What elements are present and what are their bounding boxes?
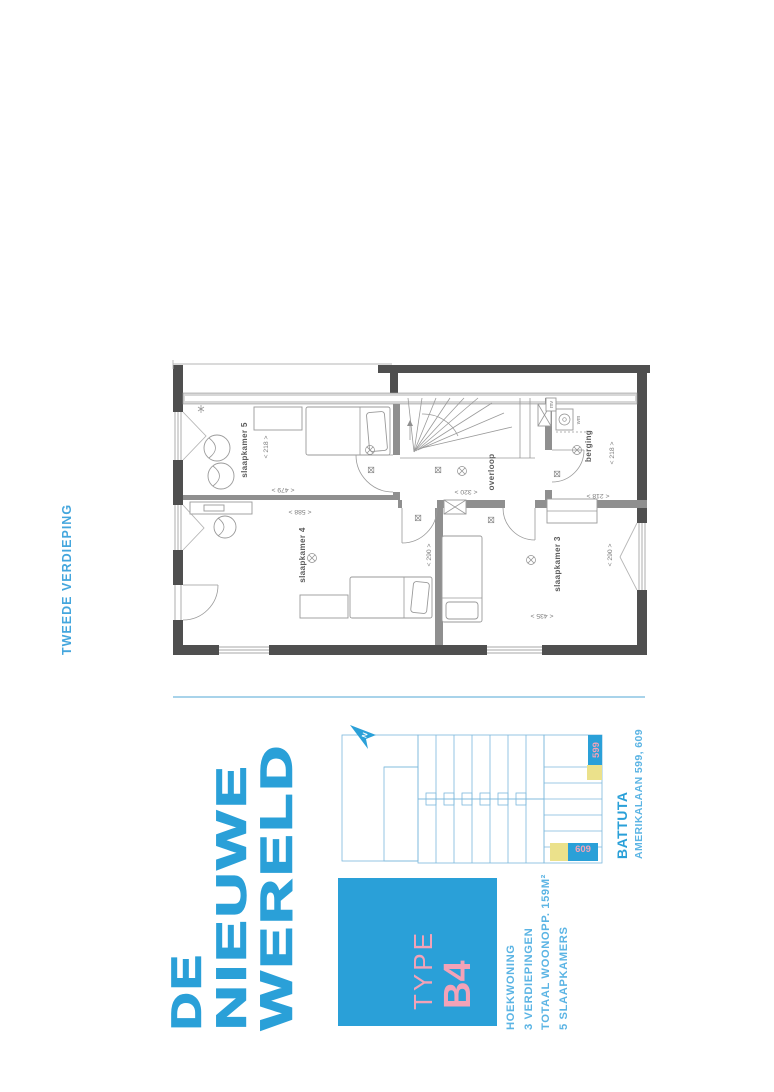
spec-line-living-area: TOTAAL WOONOPP. 159M²: [538, 874, 556, 1030]
logo-line-1: DE: [164, 789, 211, 1030]
label-wm: wm: [576, 415, 582, 425]
logo-line-2: NIEUWE: [209, 743, 256, 1030]
room-label-slaapkamer-4: slaapkamer 4: [298, 527, 307, 583]
type-code: B4: [437, 960, 480, 1009]
project-address: AMERIKALAAN 599, 609: [633, 729, 645, 859]
room-label-berging: berging: [584, 430, 593, 462]
spec-line-floors: 3 VERDIEPINGEN: [521, 874, 539, 1030]
room-label-overloop: overloop: [487, 454, 496, 491]
staircase: [400, 398, 535, 458]
label-mv: mv: [549, 401, 555, 409]
facade-glazing: [183, 393, 637, 404]
dim-overloop-width: < 320 >: [454, 488, 477, 495]
spec-line-dwelling-type: HOEKWONING: [503, 874, 521, 1030]
project-name: BATTUTA: [614, 791, 630, 859]
page-title: TWEEDE VERDIEPING: [60, 504, 74, 655]
floor-plan: slaapkamer 5 slaapkamer 4 slaapkamer 3 o…: [170, 360, 650, 660]
dim-berging-width: < 218 >: [609, 441, 616, 464]
dim-room3-width: < 435 >: [530, 612, 553, 619]
unit-number-609: 609: [575, 844, 591, 855]
unit-marker-599: 599: [588, 735, 602, 765]
type-label: TYPE: [408, 930, 439, 1010]
rotated-canvas: TWEEDE VERDIEPING: [0, 0, 774, 1092]
duct-shafts: [444, 404, 551, 514]
logo: DE NIEUWE WERELD: [165, 845, 300, 1030]
spec-list: HOEKWONING 3 VERDIEPINGEN TOTAAL WOONOPP…: [503, 874, 573, 1030]
dim-room3-depth: < 290 >: [607, 543, 614, 566]
section-divider: [173, 696, 645, 698]
unit-marker-609: 609: [568, 843, 598, 861]
dim-berging-depth: < 218 >: [586, 492, 609, 499]
site-plan: 599 609 N: [340, 715, 620, 875]
unit-number-599: 599: [591, 742, 602, 758]
type-card: TYPE B4: [338, 878, 497, 1026]
dim-room4-depth: < 290 >: [426, 543, 433, 566]
spec-line-bedrooms: 5 SLAAPKAMERS: [556, 874, 574, 1030]
room-label-slaapkamer-3: slaapkamer 3: [553, 536, 562, 592]
north-arrow-icon: N: [350, 725, 376, 749]
dim-room5-depth: < 479 >: [271, 486, 294, 493]
logo-line-3: WERELD: [252, 743, 302, 1030]
dim-room5-width: < 218 >: [263, 435, 270, 458]
room-label-slaapkamer-5: slaapkamer 5: [240, 422, 249, 478]
brochure-page: TWEEDE VERDIEPING: [0, 0, 774, 1092]
dim-room4-width: < 588 >: [288, 508, 311, 515]
